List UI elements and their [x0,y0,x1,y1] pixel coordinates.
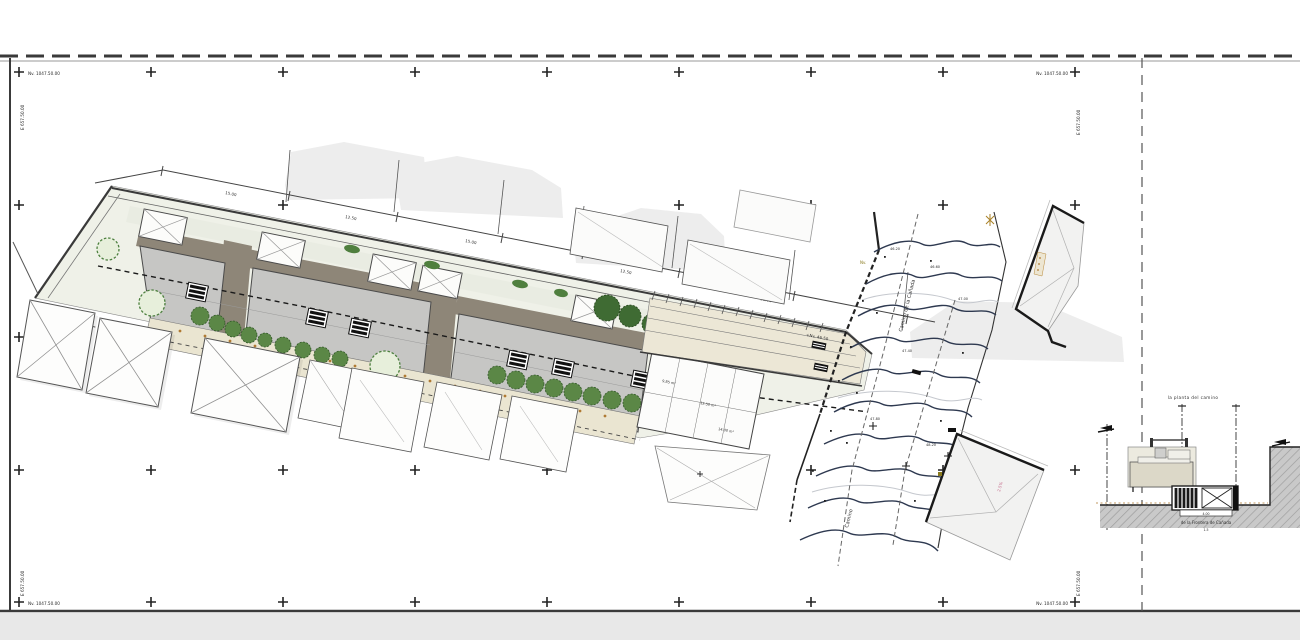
survey-cross [1070,465,1080,475]
contour-label: 46.20 [890,247,900,251]
black-bar [948,428,956,432]
survey-cross [806,67,816,77]
contour-label: 47.00 [958,297,968,301]
corner-label-br-v: E 657.50.00 [1076,570,1081,596]
survey-cross [674,200,684,210]
contour-label: 47.80 [870,417,880,421]
survey-cross [1070,200,1080,210]
contour-label: 48.20 [926,443,936,447]
dim-label: 15.00 [225,190,238,197]
survey-cross [278,597,288,607]
dim-label: 12.50 [620,268,633,275]
olive-marker-label: Nv. [860,260,866,265]
survey-cross [938,597,948,607]
corner-label-tr: Nv. 1047.50.00 [1036,71,1068,76]
survey-cross [14,465,24,475]
survey-cross [278,200,288,210]
drawing-sheet: Nv. 1047.50.00 E 657.50.00 Nv. 1047.50.0… [0,0,1300,640]
survey-cross [410,67,420,77]
prow-spur [13,242,38,294]
survey-cross [14,332,24,342]
survey-cross [14,67,24,77]
corner-label-tl: Nv. 1047.50.00 [28,71,60,76]
corner-label-tr-v: E 657.50.00 [1076,109,1081,135]
survey-cross [938,200,948,210]
corner-label-bl: Nv. 1047.50.00 [28,601,60,606]
section-detail: la planta del camino [1096,395,1300,532]
corner-label-bl-v: E 657.50.00 [20,570,25,596]
survey-cross [410,597,420,607]
plot-quad: 2.5% [926,430,1048,560]
survey-cross [14,597,24,607]
survey-cross [674,597,684,607]
site-plan-svg: Nv. 1047.50.00 E 657.50.00 Nv. 1047.50.0… [0,0,1300,640]
dim-label: 15.00 [465,238,478,245]
orange-asterisk-mark [986,214,994,226]
building-section [1128,438,1196,492]
survey-cross [806,465,816,475]
ground-hatch-elevated [1270,447,1300,528]
survey-cross [146,465,156,475]
corner-label-br: Nv. 1047.50.00 [1036,601,1068,606]
survey-cross [674,67,684,77]
survey-cross [146,597,156,607]
lower-trapezoid-plot [655,446,770,510]
olive-tick [938,472,942,476]
survey-cross [806,597,816,607]
survey-cross [542,67,552,77]
survey-cross [278,67,288,77]
black-bar [912,369,922,375]
neighbor-mass [399,156,563,218]
section-ground-label: de la Frontera de Cañada [1181,520,1232,525]
survey-cross [146,67,156,77]
outside-margin [0,613,1300,640]
section-scale-label: 1.5 [1203,528,1208,532]
survey-cross [1070,67,1080,77]
section-title: la planta del camino [1168,395,1219,400]
dim-label: 12.50 [345,214,358,221]
survey-cross [410,465,420,475]
survey-cross [938,67,948,77]
contour-label: 46.60 [930,265,940,269]
small-plus-marks [869,422,910,470]
corner-label-tl-v: E 657.50.00 [20,104,25,130]
channel-section: 4.00 [1172,486,1238,516]
survey-cross [14,200,24,210]
channel-width-label: 4.00 [1202,512,1209,516]
survey-cross [278,465,288,475]
contour-label: 47.40 [902,349,912,353]
survey-cross [1070,597,1080,607]
survey-cross [542,597,552,607]
